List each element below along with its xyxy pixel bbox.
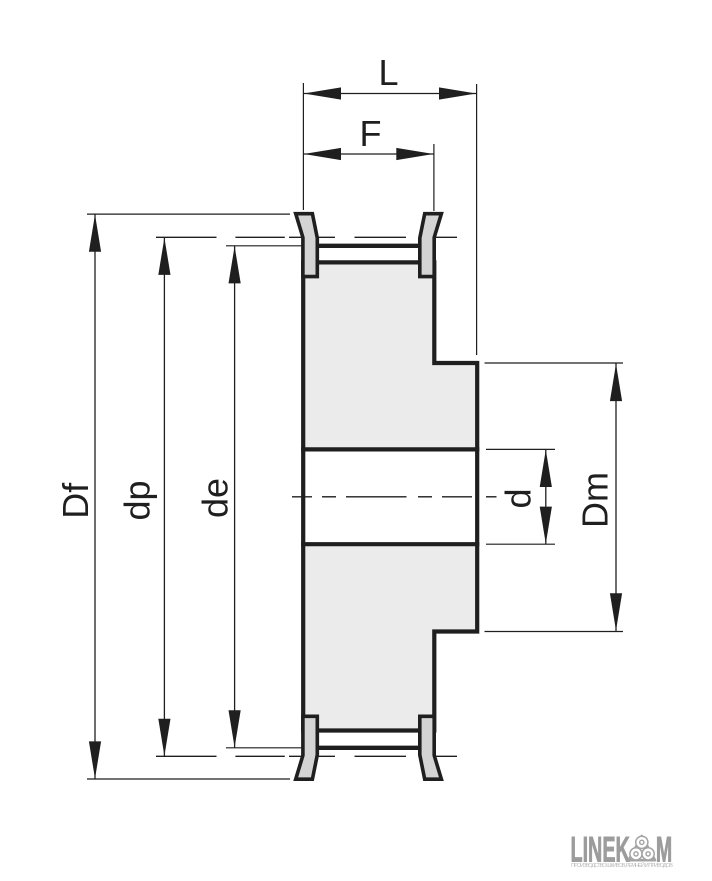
svg-text:de: de <box>195 478 236 518</box>
svg-text:F: F <box>360 113 382 154</box>
svg-text:L: L <box>378 52 398 93</box>
svg-text:Df: Df <box>55 482 96 519</box>
svg-text:dp: dp <box>117 480 158 520</box>
svg-text:Dm: Dm <box>575 472 616 528</box>
svg-text:ПРОИЗВОДСТВО ШКИВОВ, РЕМНЕЙ И: ПРОИЗВОДСТВО ШКИВОВ, РЕМНЕЙ И ПРИВОДОВ <box>571 861 673 869</box>
svg-text:d: d <box>498 488 539 508</box>
